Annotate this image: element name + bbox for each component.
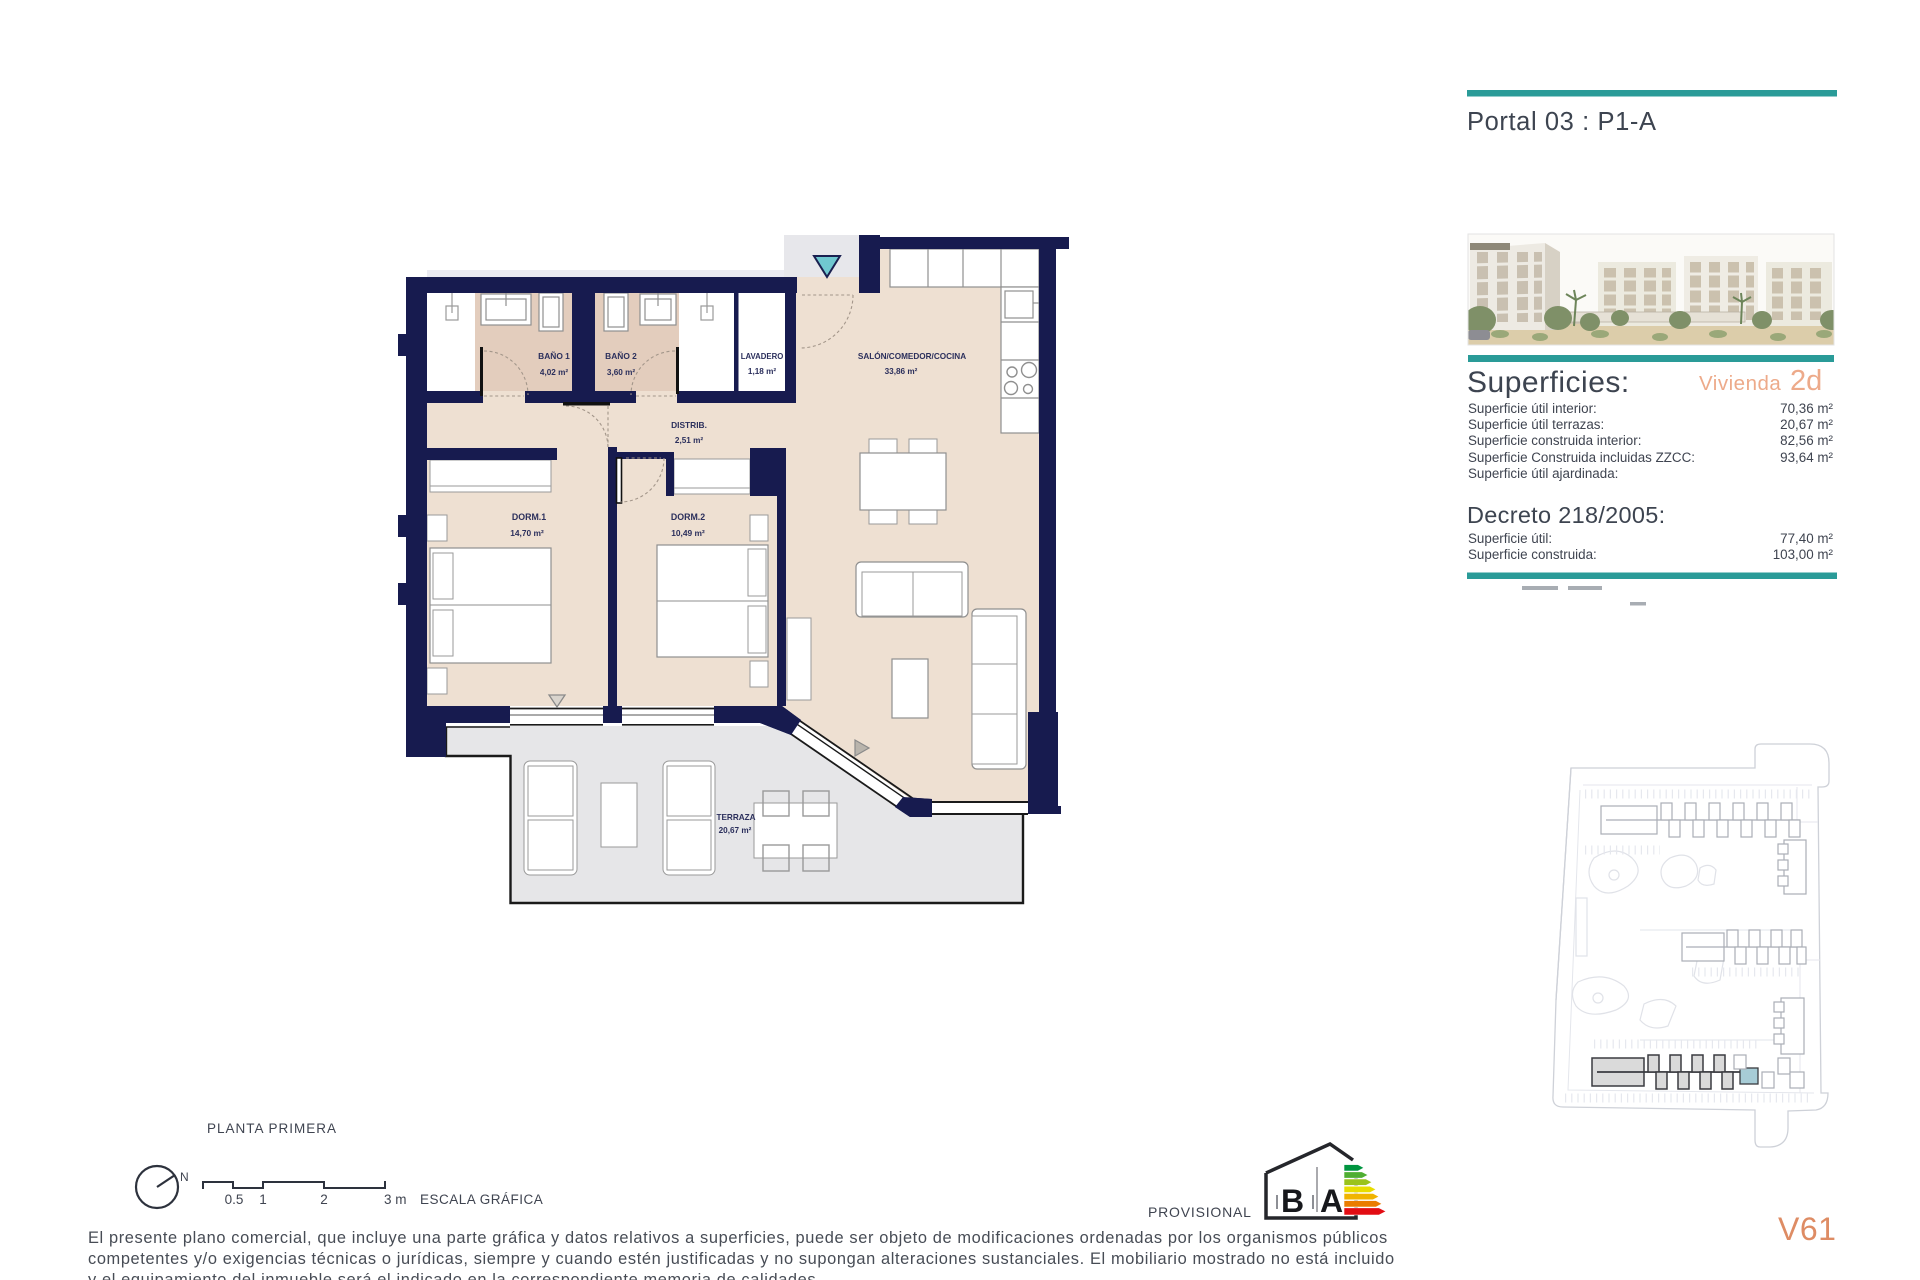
- svg-text:10,49 m²: 10,49 m²: [671, 528, 705, 538]
- svg-text:BAÑO 1: BAÑO 1: [538, 351, 570, 361]
- svg-text:77,40 m²: 77,40 m²: [1780, 531, 1833, 546]
- svg-text:14,70 m²: 14,70 m²: [510, 528, 544, 538]
- svg-text:33,86 m²: 33,86 m²: [885, 367, 918, 376]
- svg-text:TERRAZA: TERRAZA: [716, 813, 755, 822]
- svg-text:20,67 m²: 20,67 m²: [719, 826, 752, 835]
- svg-text:Superficie útil terrazas:: Superficie útil terrazas:: [1468, 417, 1604, 432]
- svg-text:Portal 03 : P1-A: Portal 03 : P1-A: [1467, 108, 1657, 136]
- svg-text:Superficies:: Superficies:: [1467, 366, 1630, 399]
- svg-text:competentes y/o exigencias téc: competentes y/o exigencias técnicas o ju…: [88, 1250, 1395, 1268]
- svg-text:70,36 m²: 70,36 m²: [1780, 401, 1833, 416]
- svg-text:3 m: 3 m: [384, 1192, 407, 1207]
- svg-text:Superficie Construida incluida: Superficie Construida incluidas ZZCC:: [1468, 450, 1695, 465]
- svg-text:2d: 2d: [1790, 365, 1822, 397]
- svg-text:20,67 m²: 20,67 m²: [1780, 417, 1833, 432]
- svg-text:2,51 m²: 2,51 m²: [675, 436, 703, 445]
- svg-text:DORM.2: DORM.2: [671, 512, 705, 522]
- svg-text:4,02 m²: 4,02 m²: [540, 368, 568, 377]
- svg-text:Decreto 218/2005:: Decreto 218/2005:: [1467, 502, 1665, 528]
- svg-text:B: B: [1281, 1183, 1304, 1219]
- svg-text:N: N: [180, 1170, 189, 1184]
- svg-text:Vivienda: Vivienda: [1699, 372, 1781, 395]
- svg-text:V61: V61: [1778, 1211, 1836, 1247]
- svg-text:Superficie útil interior:: Superficie útil interior:: [1468, 401, 1597, 416]
- svg-text:DORM.1: DORM.1: [512, 512, 546, 522]
- svg-text:BAÑO 2: BAÑO 2: [605, 351, 637, 361]
- svg-text:ESCALA GRÁFICA: ESCALA GRÁFICA: [420, 1192, 543, 1207]
- svg-text:A: A: [1320, 1183, 1343, 1219]
- svg-text:3,60 m²: 3,60 m²: [607, 368, 635, 377]
- svg-text:82,56 m²: 82,56 m²: [1780, 433, 1833, 448]
- svg-text:SALÓN/COMEDOR/COCINA: SALÓN/COMEDOR/COCINA: [858, 350, 966, 361]
- svg-text:93,64 m²: 93,64 m²: [1780, 450, 1833, 465]
- svg-text:El presente plano comercial, q: El presente plano comercial, que incluye…: [88, 1229, 1388, 1247]
- svg-text:PLANTA PRIMERA: PLANTA PRIMERA: [207, 1121, 337, 1136]
- svg-text:LAVADERO: LAVADERO: [741, 352, 784, 361]
- svg-text:y el equipamiento del inmueble: y el equipamiento del inmueble será el i…: [88, 1271, 821, 1280]
- svg-text:0.5: 0.5: [225, 1192, 244, 1207]
- svg-text:2: 2: [320, 1192, 328, 1207]
- svg-text:Superficie construida interior: Superficie construida interior:: [1468, 433, 1641, 448]
- svg-text:Superficie útil ajardinada:: Superficie útil ajardinada:: [1468, 466, 1618, 481]
- svg-text:Superficie construida:: Superficie construida:: [1468, 547, 1597, 562]
- svg-text:Superficie útil:: Superficie útil:: [1468, 531, 1552, 546]
- svg-text:DISTRIB.: DISTRIB.: [671, 420, 707, 430]
- svg-text:1: 1: [259, 1192, 267, 1207]
- svg-text:103,00 m²: 103,00 m²: [1773, 547, 1834, 562]
- svg-text:PROVISIONAL: PROVISIONAL: [1148, 1204, 1252, 1220]
- svg-text:1,18 m²: 1,18 m²: [748, 367, 776, 376]
